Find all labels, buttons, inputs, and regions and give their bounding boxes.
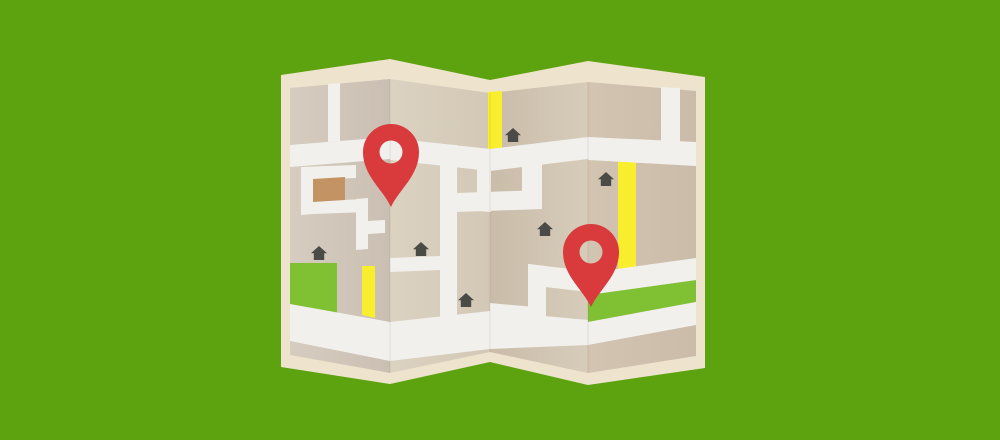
street: [368, 220, 385, 234]
street: [440, 144, 457, 330]
yellow-road: [362, 266, 375, 318]
street: [661, 87, 680, 150]
yellow-road: [618, 159, 636, 273]
street: [328, 83, 340, 142]
street: [356, 198, 368, 250]
street: [390, 256, 440, 272]
street: [522, 156, 542, 200]
street: [301, 167, 313, 215]
folded-map-illustration: [0, 0, 1000, 440]
building-block: [313, 177, 345, 202]
